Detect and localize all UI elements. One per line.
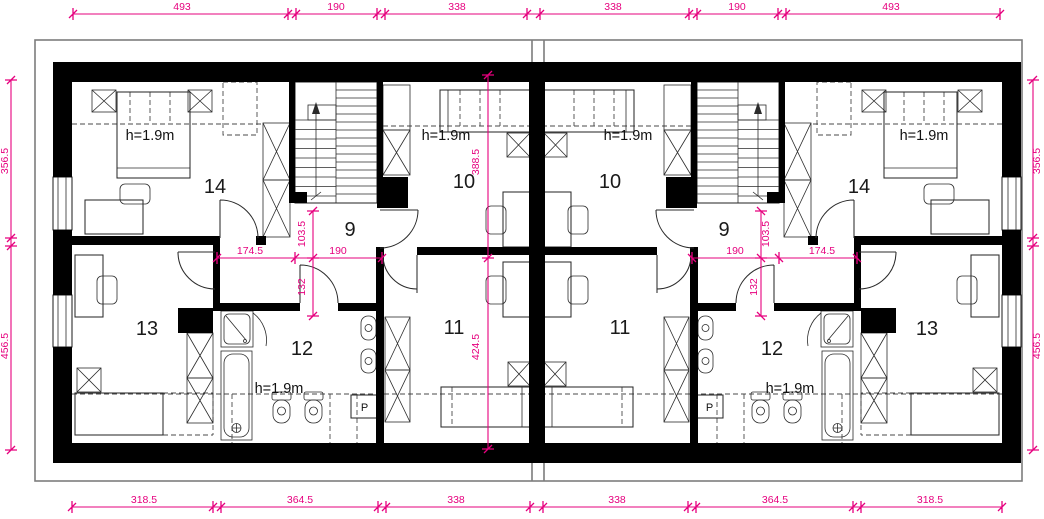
dim-top-4: 338	[604, 1, 622, 13]
chair	[97, 276, 117, 304]
door-room-11	[383, 255, 417, 293]
dim-top-1: 493	[173, 1, 191, 13]
room-label-left-13: 13	[136, 318, 158, 340]
floor-plan: 493 190 338 338 190 493 318.5 364.5 338 …	[0, 0, 1044, 519]
dimension-chain-left	[5, 76, 17, 454]
dim-bottom-5: 364.5	[762, 494, 788, 506]
room-label-right-9: 9	[718, 219, 729, 241]
right-unit-geometry	[529, 62, 1021, 463]
dim-bottom-2: 364.5	[287, 494, 313, 506]
door-room-14	[220, 200, 258, 238]
washer-label-right: P	[706, 402, 713, 414]
window	[53, 295, 72, 347]
chair	[120, 184, 150, 204]
wardrobe	[187, 333, 213, 423]
roof-outline	[35, 40, 1022, 481]
shower	[221, 311, 267, 347]
door-room-10	[380, 210, 418, 248]
dim-left-1: 356.5	[0, 148, 11, 174]
room-label-right-14: 14	[848, 176, 870, 198]
bathroom-fixtures	[221, 311, 377, 440]
room-label-right-10: 10	[599, 171, 621, 193]
bidet	[304, 392, 323, 423]
room-label-left-14: 14	[204, 176, 226, 198]
nightstand	[92, 90, 116, 112]
staircase	[295, 82, 377, 203]
window	[53, 177, 72, 230]
bathtub	[221, 351, 252, 440]
dim-bottom-1: 318.5	[131, 494, 157, 506]
desk	[503, 262, 530, 317]
dim-inner-right-upper: 103.5	[760, 221, 772, 247]
dim-top-6: 493	[882, 1, 900, 13]
dim-right-2: 456.5	[1031, 333, 1043, 359]
height-label-right-bathroom: h=1.9m	[766, 381, 815, 397]
room-label-right-13: 13	[916, 318, 938, 340]
dimension-chain-right	[1027, 76, 1039, 454]
dim-bottom-4: 338	[608, 494, 626, 506]
height-label-right-14: h=1.9m	[900, 128, 949, 144]
dim-inner-right-hall-a: 190	[726, 245, 744, 257]
furniture-room-13	[75, 255, 213, 435]
left-unit-geometry	[53, 62, 545, 463]
dim-bottom-3: 338	[447, 494, 465, 506]
bed	[440, 90, 530, 132]
nightstand	[508, 362, 530, 386]
furniture-room-14	[85, 90, 290, 237]
door-room-13	[178, 252, 215, 289]
dim-inner-left-lower: 132	[296, 278, 308, 296]
dim-top-2: 190	[327, 1, 345, 13]
dim-inner-left-upper: 103.5	[296, 221, 308, 247]
bed	[75, 393, 163, 435]
nightstand	[507, 133, 530, 157]
dim-left-2: 456.5	[0, 333, 11, 359]
room-label-left-11: 11	[444, 317, 465, 339]
dim-room11-depth: 424.5	[470, 334, 482, 360]
walls	[53, 62, 545, 463]
room-label-left-9: 9	[344, 219, 355, 241]
chimney	[178, 308, 213, 333]
floor-plan-page: 493 190 338 338 190 493 318.5 364.5 338 …	[0, 0, 1044, 519]
desk	[75, 255, 103, 317]
dim-inner-left-hall-a: 174.5	[237, 245, 263, 257]
room-label-left-12: 12	[291, 338, 313, 360]
washer-label-left: P	[361, 402, 368, 414]
wardrobe	[385, 317, 410, 422]
depth-dimension-line	[482, 71, 494, 453]
dimension-chain-bottom	[68, 501, 1006, 513]
dim-bottom-6: 318.5	[917, 494, 943, 506]
dim-top-5: 190	[728, 1, 746, 13]
furniture-room-10	[383, 85, 530, 247]
room-label-right-12: 12	[761, 338, 783, 360]
height-label-left-bathroom: h=1.9m	[255, 381, 304, 397]
washbasin	[361, 349, 376, 373]
room-label-right-11: 11	[610, 317, 631, 339]
height-label-right-10: h=1.9m	[604, 128, 653, 144]
nightstand	[77, 368, 101, 392]
height-label-left-14: h=1.9m	[126, 128, 175, 144]
dim-inner-right-lower: 132	[748, 278, 760, 296]
dim-inner-right-hall-b: 174.5	[809, 245, 835, 257]
nightstand	[188, 90, 212, 112]
desk	[503, 192, 530, 247]
dim-right-1: 356.5	[1031, 148, 1043, 174]
wardrobe	[263, 123, 290, 237]
room-label-left-10: 10	[453, 171, 475, 193]
height-label-left-10: h=1.9m	[422, 128, 471, 144]
furniture-room-11	[385, 262, 530, 427]
dim-inner-left-hall-b: 190	[329, 245, 347, 257]
cabinet	[383, 85, 410, 175]
dim-top-3: 338	[448, 1, 466, 13]
washbasin	[361, 316, 376, 340]
chimney	[377, 177, 408, 208]
bed	[441, 387, 530, 427]
desk	[85, 200, 143, 234]
dimension-chain-top	[69, 8, 1004, 20]
